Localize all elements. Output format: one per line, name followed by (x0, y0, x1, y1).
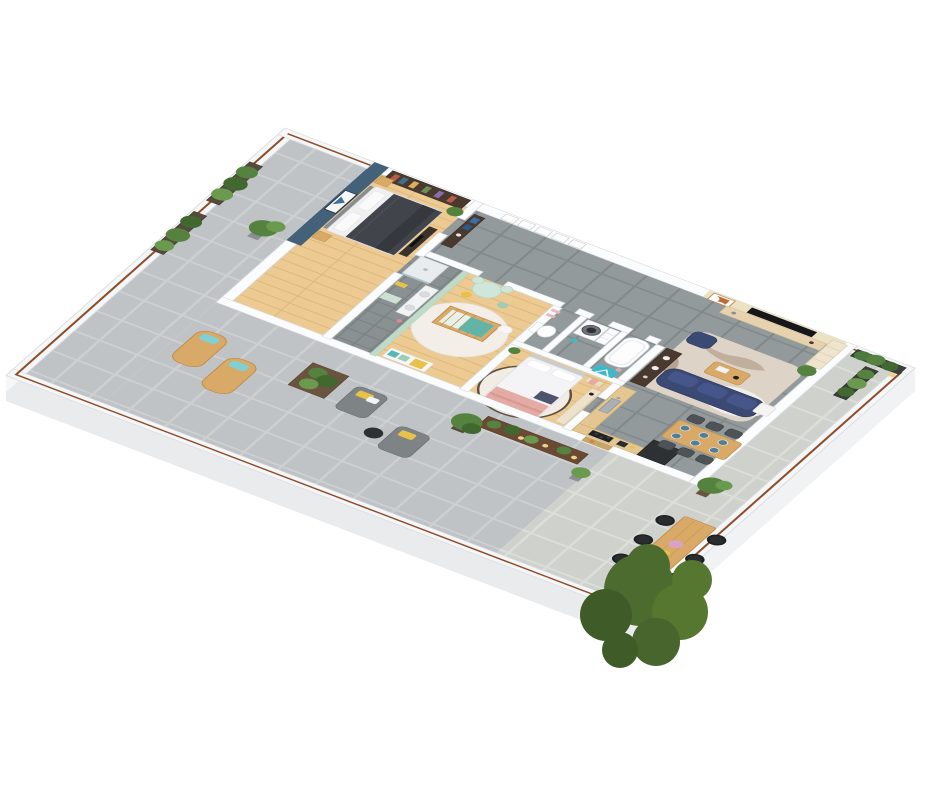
tree-canopy-7 (626, 544, 670, 588)
floor-plan-render (0, 0, 941, 800)
tree-canopy-4 (632, 618, 680, 666)
floor-plan-svg (0, 0, 941, 800)
tree-canopy-5 (602, 632, 638, 668)
plan-group (5, 128, 919, 618)
tree-canopy-6 (672, 560, 712, 600)
